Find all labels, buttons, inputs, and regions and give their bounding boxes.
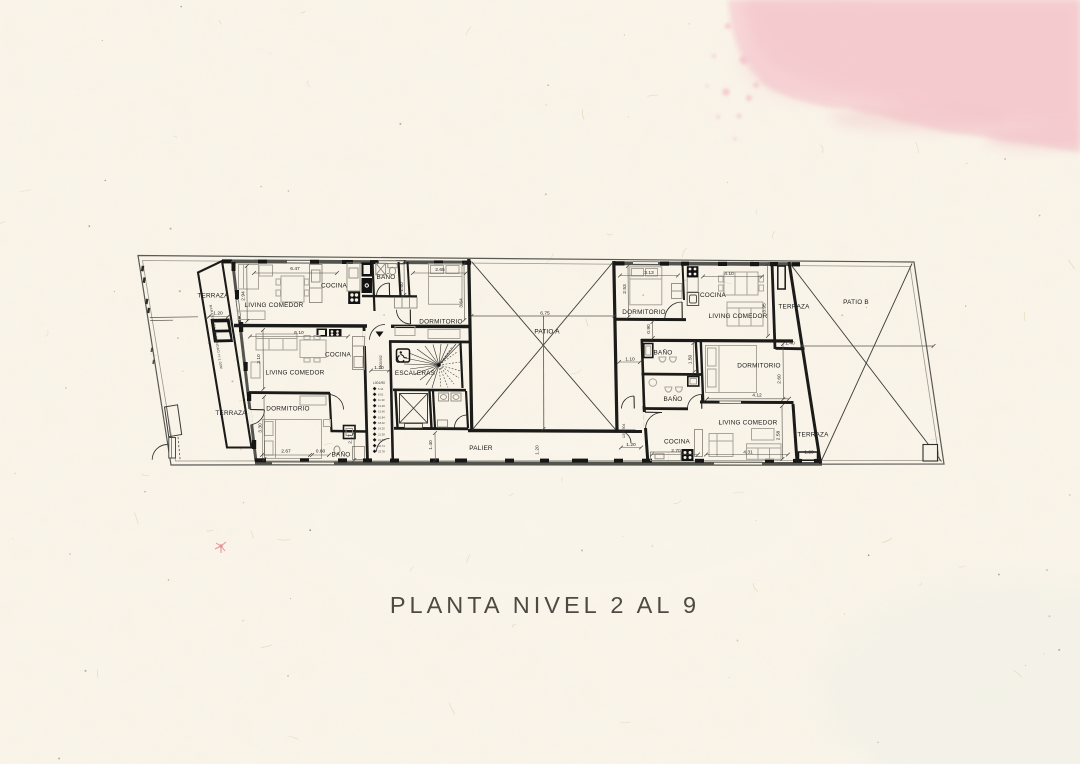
svg-text:COCINA: COCINA: [321, 283, 348, 290]
svg-text:PLANTA NIVEL 2 AL 9: PLANTA NIVEL 2 AL 9: [390, 592, 700, 618]
svg-text:TERRAZA: TERRAZA: [778, 304, 810, 311]
svg-text:1.50: 1.50: [399, 282, 405, 292]
svg-text:TERRAZA: TERRAZA: [215, 410, 247, 417]
svg-text:19.20: 19.20: [378, 427, 385, 431]
svg-text:13.48: 13.48: [378, 404, 385, 408]
svg-text:1.20: 1.20: [213, 311, 223, 317]
svg-text:3.95: 3.95: [762, 303, 768, 313]
svg-text:4.12: 4.12: [752, 393, 762, 399]
svg-text:2.60: 2.60: [777, 374, 783, 384]
svg-text:1.20: 1.20: [626, 442, 636, 448]
svg-text:DORMITORIO: DORMITORIO: [266, 406, 309, 413]
svg-text:2.70: 2.70: [671, 448, 681, 454]
svg-text:1.20: 1.20: [804, 450, 814, 456]
svg-text:LIVING COMEDOR: LIVING COMEDOR: [266, 370, 325, 377]
svg-text:2.94: 2.94: [241, 291, 247, 301]
svg-text:2.58: 2.58: [776, 430, 782, 440]
svg-text:COCINA: COCINA: [664, 439, 691, 446]
svg-text:4.31: 4.31: [743, 450, 753, 456]
svg-text:BAÑO: BAÑO: [332, 450, 351, 459]
svg-text:TERRAZA: TERRAZA: [197, 293, 229, 300]
svg-text:4.10: 4.10: [724, 271, 734, 277]
svg-text:1.50: 1.50: [688, 354, 694, 364]
svg-text:BAÑO: BAÑO: [654, 348, 673, 357]
svg-text:L001/90: L001/90: [373, 381, 385, 385]
svg-text:3.64: 3.64: [459, 298, 465, 308]
svg-text:LIVING COMEDOR: LIVING COMEDOR: [245, 302, 304, 309]
svg-text:18.02: 18.02: [378, 421, 385, 425]
svg-text:3.10: 3.10: [256, 354, 262, 364]
svg-text:1.10: 1.10: [625, 357, 635, 363]
svg-text:21.38: 21.38: [378, 432, 385, 436]
svg-text:1.20: 1.20: [535, 445, 541, 455]
svg-text:DORMITORIO: DORMITORIO: [419, 319, 462, 326]
svg-text:U203/904: U203/904: [622, 424, 626, 438]
svg-text:1.40: 1.40: [785, 341, 795, 347]
svg-text:BAÑO: BAÑO: [664, 394, 683, 403]
svg-text:TERRAZA: TERRAZA: [797, 432, 829, 439]
svg-text:COCINA: COCINA: [700, 292, 727, 299]
svg-text:DORMITORIO: DORMITORIO: [737, 363, 780, 370]
svg-text:16.84: 16.84: [378, 415, 385, 419]
svg-text:1.40: 1.40: [428, 440, 434, 450]
svg-text:PATIO B: PATIO B: [843, 299, 869, 306]
svg-text:6.10: 6.10: [294, 330, 304, 336]
svg-text:COCINA: COCINA: [325, 352, 352, 359]
svg-text:L002/902: L002/902: [379, 355, 383, 369]
svg-text:LIVING COMEDOR: LIVING COMEDOR: [719, 420, 778, 427]
svg-text:PATIO A: PATIO A: [534, 329, 560, 336]
svg-text:3.30: 3.30: [258, 423, 264, 433]
svg-text:LIVING COMEDOR: LIVING COMEDOR: [709, 313, 768, 320]
svg-text:5.44: 5.44: [378, 387, 384, 391]
svg-text:11.30: 11.30: [378, 398, 385, 402]
svg-text:0.60: 0.60: [316, 449, 326, 455]
svg-text:2.53: 2.53: [622, 284, 628, 294]
svg-text:2.17: 2.17: [348, 434, 354, 444]
svg-text:21.56: 21.56: [378, 438, 385, 442]
svg-text:6.47: 6.47: [290, 266, 300, 272]
svg-text:23.78: 23.78: [378, 450, 385, 454]
svg-text:BAÑO: BAÑO: [377, 272, 396, 281]
svg-text:2.67: 2.67: [281, 449, 291, 455]
svg-text:8.62: 8.62: [378, 393, 384, 397]
svg-text:22.74: 22.74: [378, 444, 385, 448]
svg-text:DORMITORIO: DORMITORIO: [622, 309, 665, 316]
svg-text:PALIER: PALIER: [469, 445, 493, 452]
svg-text:ESCALERAS: ESCALERAS: [395, 370, 435, 377]
svg-text:2.65: 2.65: [435, 267, 445, 273]
svg-text:15.66: 15.66: [378, 410, 385, 414]
svg-text:6.75: 6.75: [540, 311, 550, 317]
svg-text:3.13: 3.13: [644, 270, 654, 276]
svg-text:0.90: 0.90: [646, 324, 652, 334]
